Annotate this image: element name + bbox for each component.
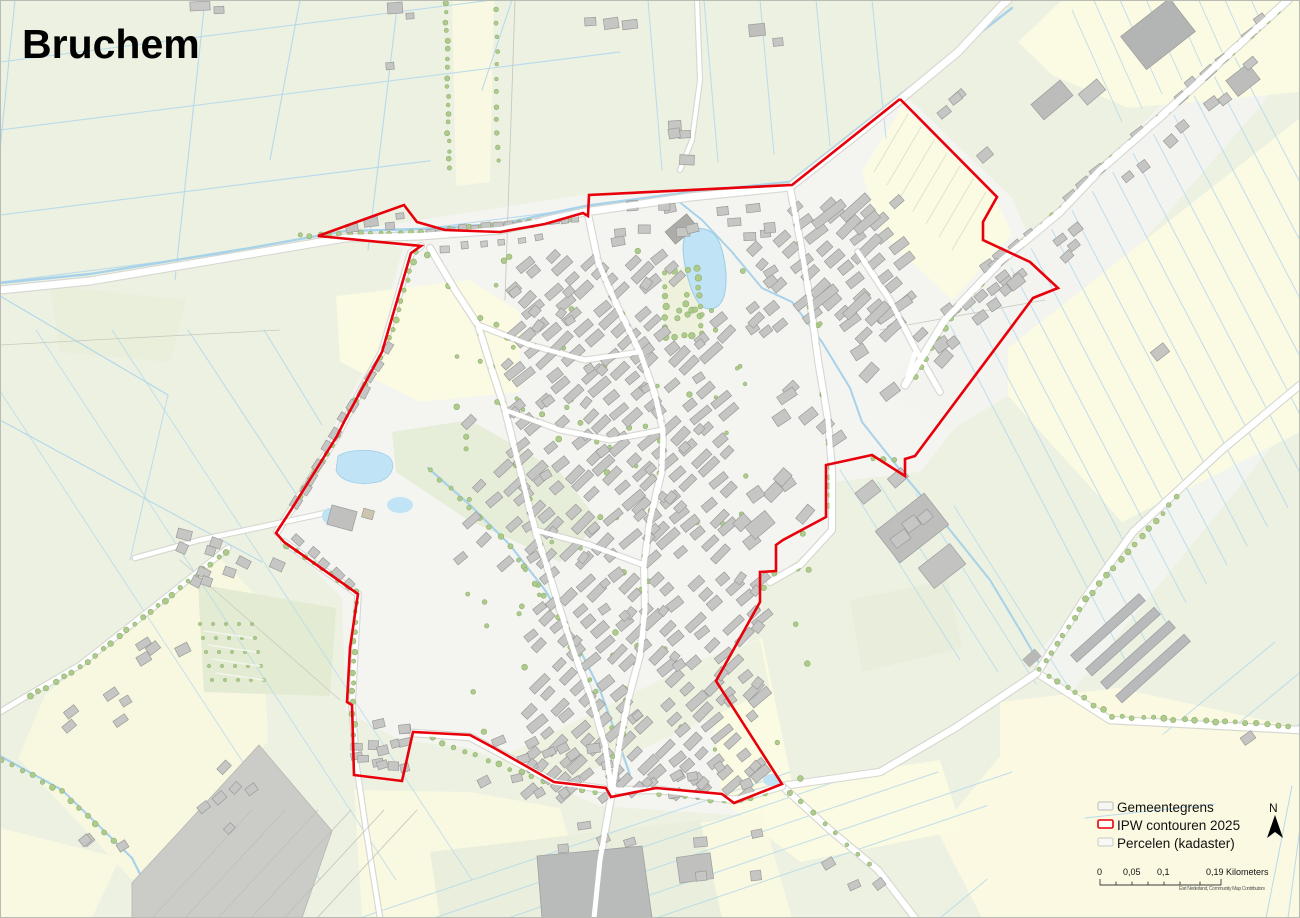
svg-text:Bruchem: Bruchem (22, 21, 200, 67)
svg-text:Percelen (kadaster): Percelen (kadaster) (1117, 836, 1235, 851)
svg-text:N: N (1269, 801, 1278, 815)
svg-text:0,1: 0,1 (1157, 867, 1170, 877)
svg-text:Esri Nederland, Community Map: Esri Nederland, Community Map Contributo… (1179, 886, 1266, 892)
svg-text:0,19 Kilometers: 0,19 Kilometers (1206, 867, 1269, 877)
svg-text:0,05: 0,05 (1123, 867, 1141, 877)
svg-text:IPW contouren 2025: IPW contouren 2025 (1117, 818, 1240, 833)
svg-text:Gemeentegrens: Gemeentegrens (1117, 800, 1214, 815)
svg-text:0: 0 (1097, 867, 1102, 877)
